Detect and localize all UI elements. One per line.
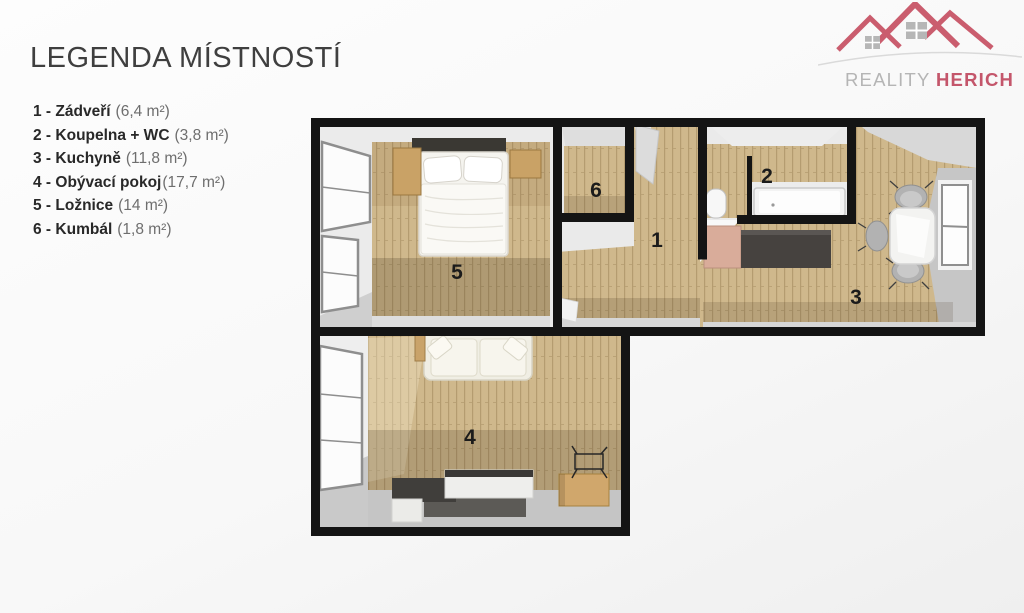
room-closet [561,122,631,218]
kitchen-window [938,180,972,270]
nightstand-left [393,148,421,195]
legend-item-5: 5 - Ložnice(14 m²) [33,194,229,218]
legend-number: 6 - [33,221,51,238]
roof-window-left [865,36,880,49]
bed-pillow-right [463,156,502,183]
bedroom-baseboard [372,316,550,327]
desk-shade [559,474,565,506]
legend-number: 3 - [33,150,51,167]
tv-stand-top [445,470,533,477]
logo-arc [818,53,1022,66]
tv-stand-white-box [392,499,422,522]
room-label-bedroom: 5 [451,261,463,284]
legend-room-name: Zádveří [55,103,110,120]
floor-plan: 1 2 3 4 5 6 [300,105,1000,550]
desk [559,474,609,506]
legend-number: 4 - [33,174,51,191]
bedroom-door [560,298,578,322]
legend-room-area: (14 m²) [118,197,168,214]
legend-room-name: Kumbál [55,221,112,238]
legend-room-area: (11,8 m²) [126,150,188,167]
legend-number: 1 - [33,103,51,120]
logo-text-herich: HERICH [936,69,1014,90]
page: LEGENDA MÍSTNOSTÍ 1 - Zádveří(6,4 m²) 2 … [0,0,1024,613]
toilet [706,189,726,218]
double-bed [412,138,508,256]
chair-top-seat [900,191,922,207]
legend-number: 5 - [33,197,51,214]
living-window [320,346,362,490]
room-bathroom [700,122,852,220]
legend-number: 2 - [33,127,51,144]
legend-room-area: (1,8 m²) [117,221,171,238]
kitchen-cabinet [704,226,741,268]
logo-text-reality: REALITY [845,69,931,90]
roof-window-center [906,22,927,39]
legend-item-6: 6 - Kumbál(1,8 m²) [33,218,229,242]
legend-room-name: Koupelna + WC [55,127,169,144]
legend-room-area: (17,7 m²) [162,174,225,191]
sofa [415,332,532,380]
legend-item-3: 3 - Kuchyně(11,8 m²) [33,147,229,171]
kitchen-counter [741,230,831,268]
chair-left [866,221,888,251]
legend-item-4: 4 - Obývací pokoj(17,7 m²) [33,171,229,195]
room-label-closet: 6 [590,179,602,202]
bed-pillow-left [423,155,462,183]
sofa-side-table [415,333,425,361]
legend-room-area: (3,8 m²) [175,127,229,144]
nightstand-right [510,150,541,178]
room-bedroom [313,120,557,334]
room-label-hall: 1 [651,229,663,252]
room-label-bath: 2 [761,165,773,188]
hall-floor-shade [557,298,700,320]
legend-room-name: Kuchyně [55,150,120,167]
dining-table-sheen [896,214,930,258]
room-label-living: 4 [464,426,476,449]
legend-room-area: (6,4 m²) [116,103,170,120]
room-legend: 1 - Zádveří(6,4 m²) 2 - Koupelna + WC(3,… [33,100,229,241]
bathtub-drain [771,203,774,206]
page-title: LEGENDA MÍSTNOSTÍ [30,42,341,75]
legend-room-name: Obývací pokoj [55,174,161,191]
room-label-kitchen: 3 [850,286,862,309]
agency-logo: REALITY HERICH [818,2,1022,98]
legend-item-1: 1 - Zádveří(6,4 m²) [33,100,229,124]
bed-duvet [421,184,506,254]
logo-house-roofs-icon [838,4,992,50]
legend-item-2: 2 - Koupelna + WC(3,8 m²) [33,124,229,148]
legend-room-name: Ložnice [55,197,113,214]
bathtub [754,188,845,216]
